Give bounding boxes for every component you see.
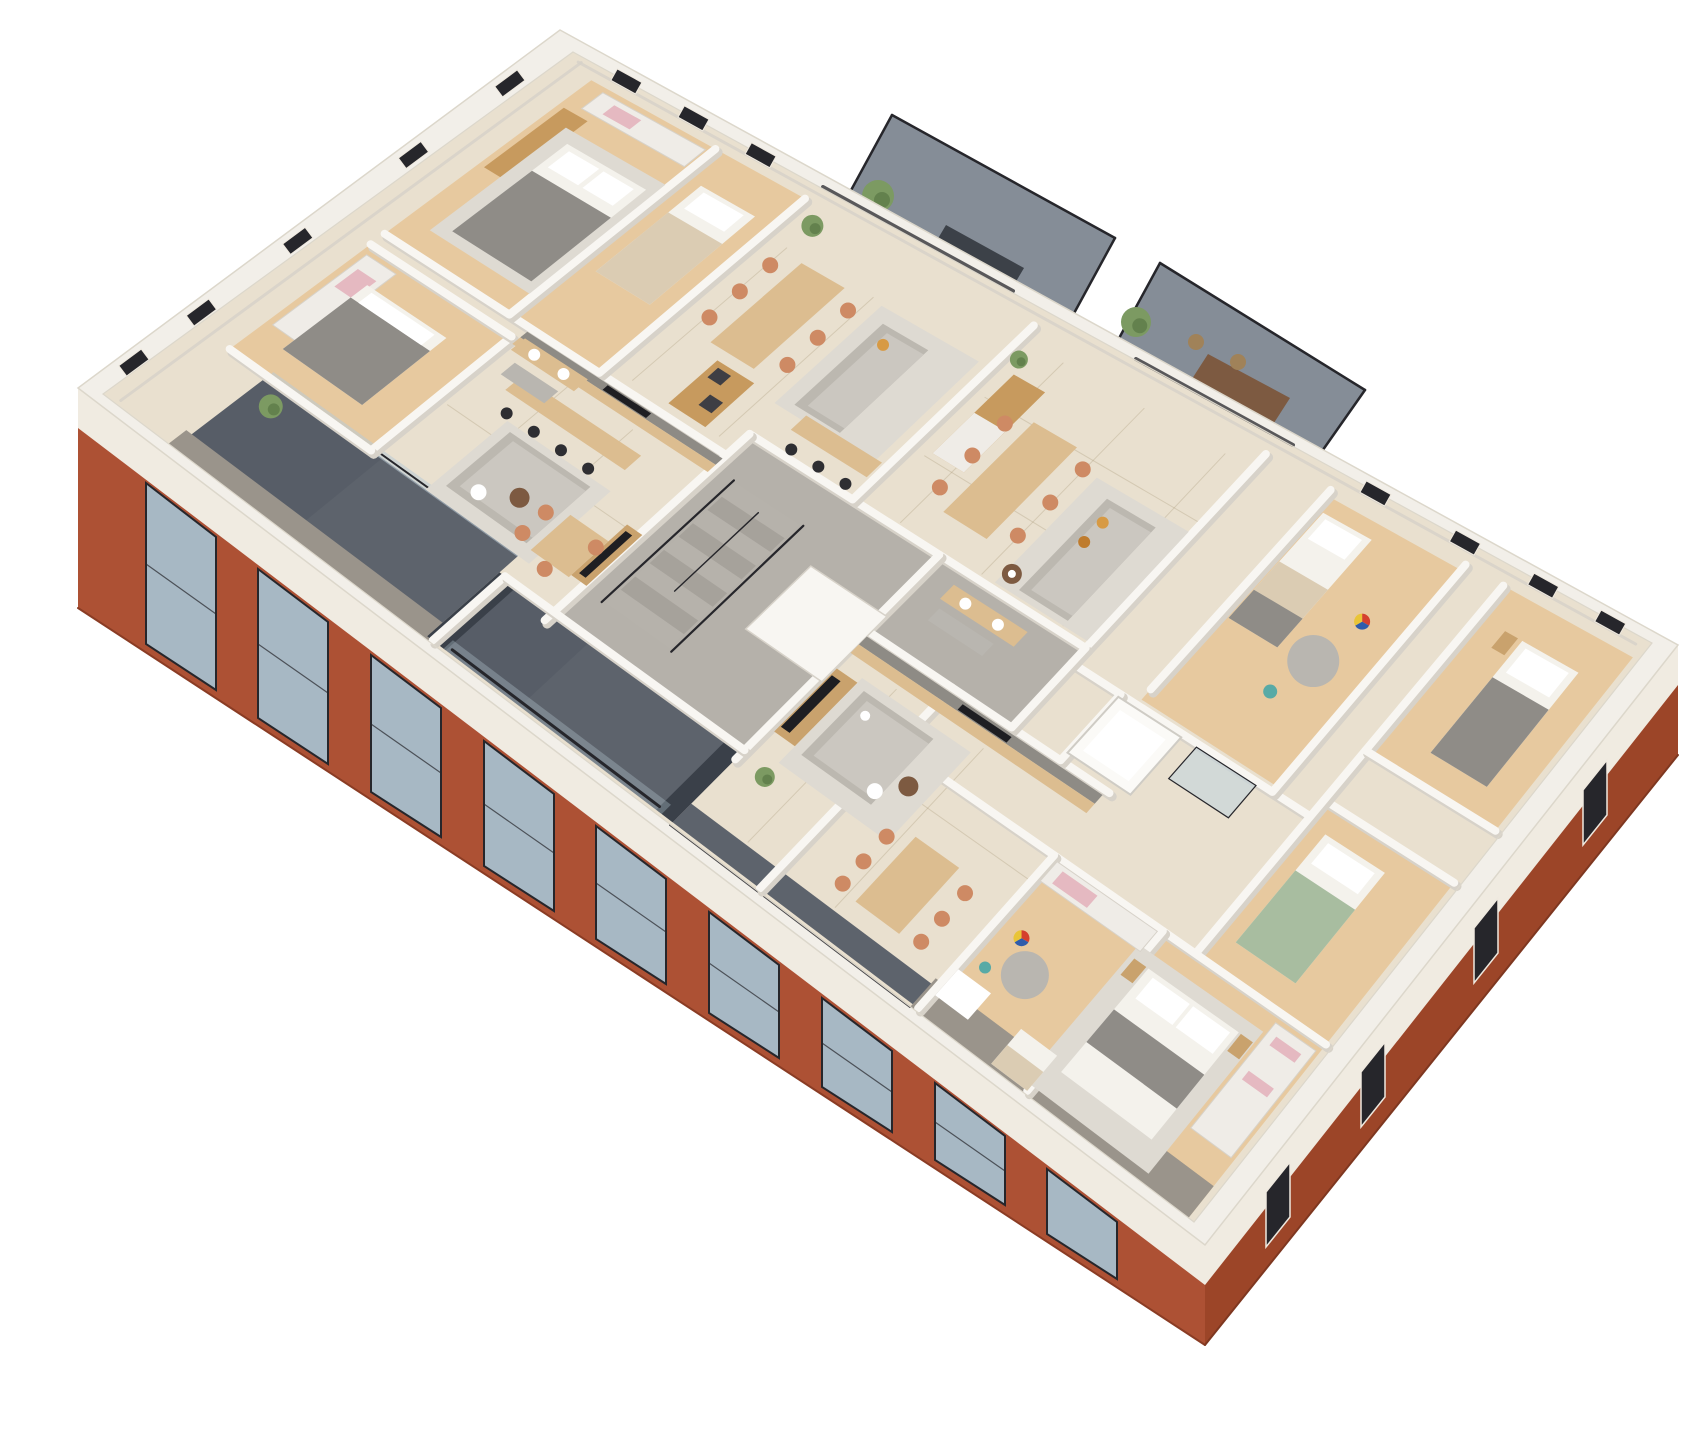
dining-chair [997,416,1013,432]
dining-chair [762,257,778,273]
dining-chair [588,539,604,555]
coffee-table [471,484,487,500]
outdoor-chair [1230,354,1246,370]
dining-chair [538,504,554,520]
kids-chair [979,961,991,973]
dining-chair [879,829,895,845]
dining-chair [779,357,795,373]
dining-chair [1075,461,1091,477]
coffee-table [867,783,883,799]
dining-chair [1010,528,1026,544]
sofa-pillow [877,339,889,351]
sink [558,368,570,380]
dining-chair [1042,494,1058,510]
dining-chair [840,302,856,318]
sofa-pillow [860,711,870,721]
sofa-pillow [1078,536,1090,548]
sofa-pillow [1097,517,1109,529]
dining-chair [957,885,973,901]
plant-foliage [1132,318,1147,333]
dining-chair [701,309,717,325]
sink [992,619,1004,631]
bar-stool [528,426,540,438]
dining-chair [732,283,748,299]
round-rug [1001,951,1049,999]
coffee-table [510,488,530,508]
dining-chair [934,911,950,927]
dining-chair [810,330,826,346]
dining-chair [835,876,851,892]
dining-chair [932,479,948,495]
outdoor-chair [1188,334,1204,350]
bar-stool [582,463,594,475]
dining-chair [537,561,553,577]
dining-chair [856,853,872,869]
plant-foliage [762,774,772,784]
dining-chair [964,447,980,463]
bar-stool [555,444,567,456]
dining-chair [514,525,530,541]
plant-foliage [268,403,280,415]
floor-plan-3d-rendering [0,0,1706,1440]
sink [528,349,540,361]
plant-foliage [1017,357,1026,366]
bar-stool [501,407,513,419]
sink [959,598,971,610]
round-rug [1287,635,1339,687]
coffee-table [898,776,918,796]
bar-stool [785,444,797,456]
bar-stool [812,461,824,473]
side-table-deco [1008,570,1016,578]
floor-plan-canvas [0,0,1706,1440]
plant-foliage [810,223,821,234]
bar-stool [839,478,851,490]
dining-chair [913,934,929,950]
kids-stool [1263,685,1277,699]
